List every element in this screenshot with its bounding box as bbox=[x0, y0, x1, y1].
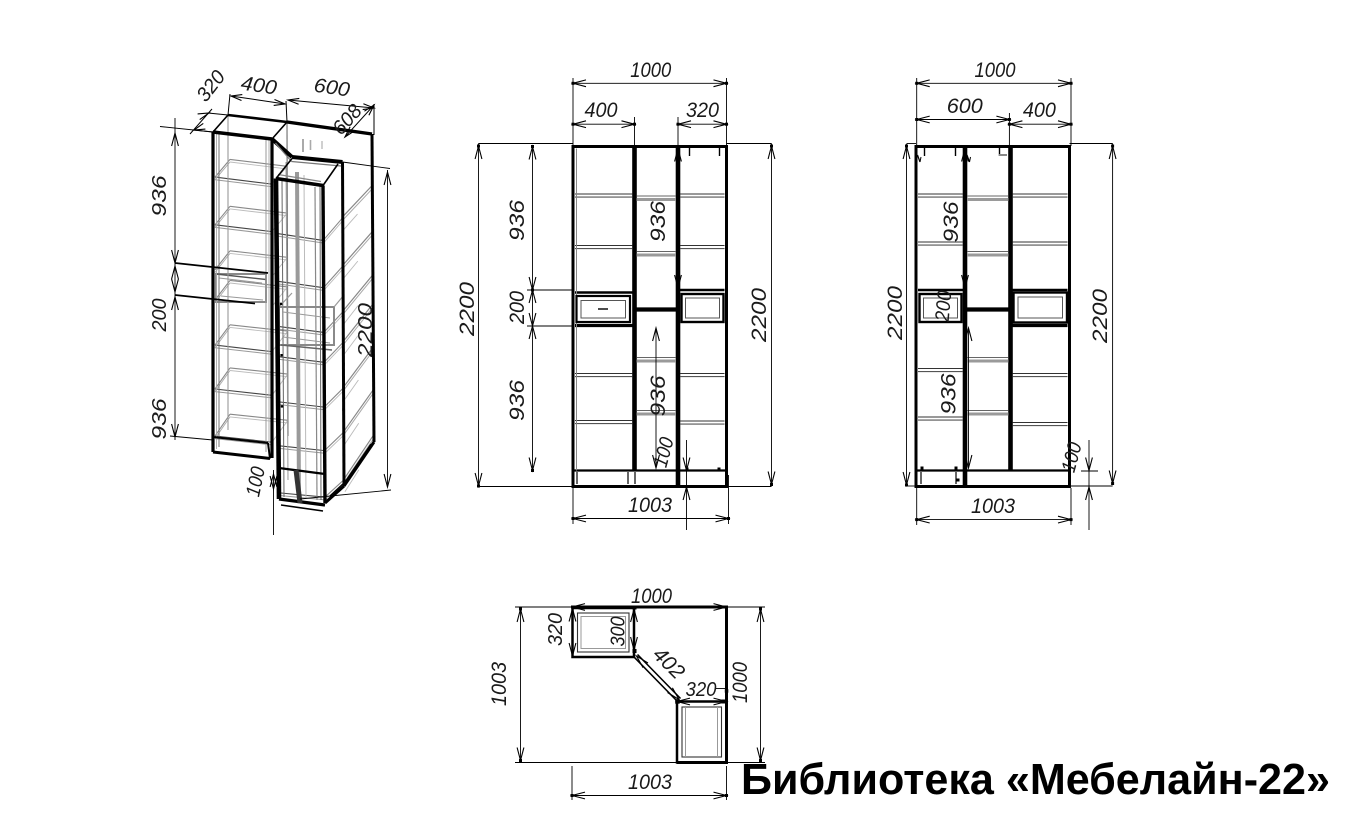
svg-text:936: 936 bbox=[506, 380, 529, 421]
svg-text:2200: 2200 bbox=[355, 303, 377, 358]
svg-text:320: 320 bbox=[686, 99, 719, 122]
svg-text:936: 936 bbox=[647, 201, 670, 242]
svg-text:1003: 1003 bbox=[628, 494, 672, 517]
svg-text:1000: 1000 bbox=[630, 59, 671, 82]
svg-text:2200: 2200 bbox=[456, 282, 479, 338]
svg-text:936: 936 bbox=[149, 397, 171, 439]
svg-text:400: 400 bbox=[1023, 99, 1056, 122]
svg-text:936: 936 bbox=[149, 174, 171, 216]
svg-text:1003: 1003 bbox=[628, 771, 672, 794]
svg-text:1000: 1000 bbox=[631, 585, 672, 608]
svg-text:2200: 2200 bbox=[884, 286, 907, 342]
svg-text:1003: 1003 bbox=[971, 495, 1015, 518]
svg-text:2200: 2200 bbox=[1089, 289, 1112, 345]
svg-text:200: 200 bbox=[932, 290, 957, 324]
svg-text:600: 600 bbox=[947, 95, 983, 118]
svg-text:936: 936 bbox=[938, 373, 961, 414]
svg-text:1003: 1003 bbox=[488, 662, 511, 706]
svg-text:936: 936 bbox=[647, 375, 670, 416]
svg-text:400: 400 bbox=[585, 99, 618, 122]
svg-text:936: 936 bbox=[506, 200, 529, 241]
svg-text:2200: 2200 bbox=[748, 288, 771, 344]
svg-text:1000: 1000 bbox=[975, 59, 1016, 82]
svg-text:Библиотека «Мебелайн-22»: Библиотека «Мебелайн-22» bbox=[741, 755, 1330, 804]
svg-text:320: 320 bbox=[545, 613, 567, 646]
svg-text:320: 320 bbox=[686, 679, 717, 701]
svg-text:300: 300 bbox=[608, 617, 630, 647]
svg-text:200: 200 bbox=[506, 291, 529, 325]
svg-text:1000: 1000 bbox=[729, 662, 752, 703]
svg-text:936: 936 bbox=[940, 201, 963, 242]
svg-text:200: 200 bbox=[149, 299, 171, 333]
